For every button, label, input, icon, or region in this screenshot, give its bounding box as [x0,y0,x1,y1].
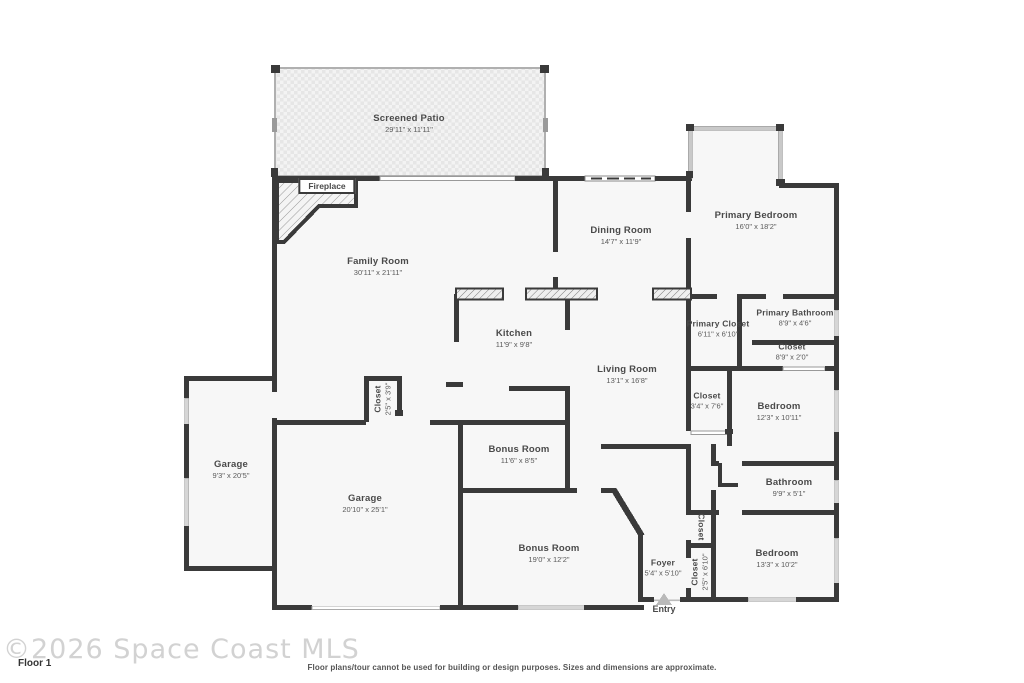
passthrough-bars [456,289,691,300]
floorplan-page: Screened Patio 29'11" x 11'11" Fireplace… [0,0,1024,683]
floorplan-drawing [0,0,1024,683]
screened-patio-area [271,65,549,177]
disclaimer-text: Floor plans/tour cannot be used for buil… [0,663,1024,672]
room-label-fireplace: Fireplace [298,178,355,194]
room-name: Fireplace [308,181,345,191]
entry-label: Entry [652,604,675,614]
watermark: ©2026 Space Coast MLS [3,634,360,665]
